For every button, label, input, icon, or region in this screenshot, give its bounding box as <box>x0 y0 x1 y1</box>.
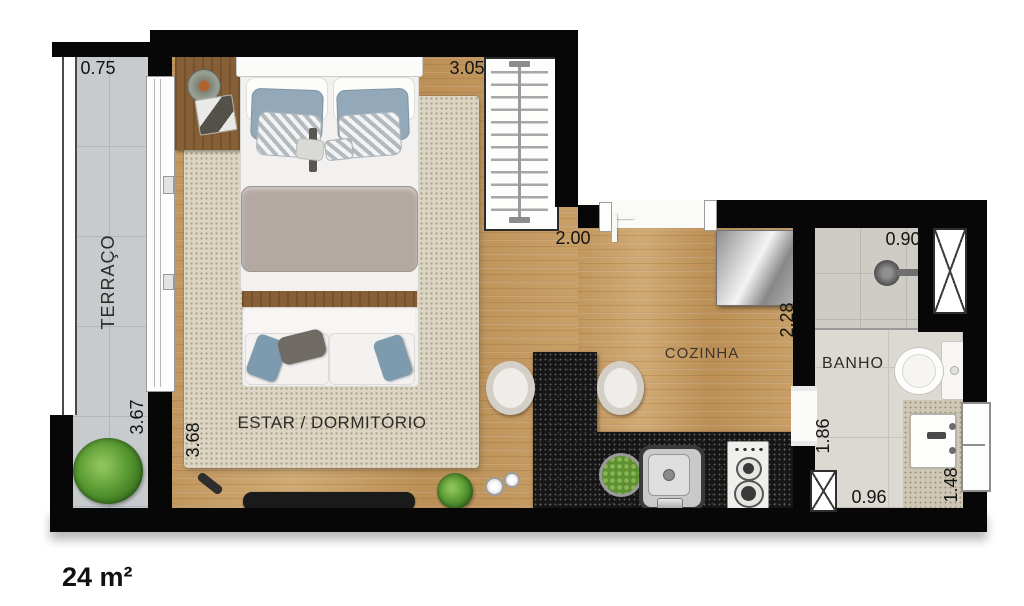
burner-large-center <box>741 486 756 501</box>
sliding-door-handle-2 <box>163 274 174 290</box>
plant-living <box>437 473 473 509</box>
sliding-door-line-1 <box>154 79 155 387</box>
dim-banho-right: 1.48 <box>931 464 971 506</box>
closet-rail-end-top <box>509 61 530 67</box>
duct-shaft-bottom-left <box>810 470 837 512</box>
sofa-console <box>242 291 417 307</box>
dim-cozinha-depth: 2.28 <box>768 300 806 340</box>
closet-rail-end-bottom <box>509 217 530 223</box>
entry-door-post-left <box>599 202 612 232</box>
pillow-small-left <box>295 137 325 161</box>
wall-closet-right <box>555 30 578 207</box>
bath-accessory-1 <box>949 423 956 430</box>
room-label-banho: BANHO <box>812 354 894 374</box>
magazines <box>194 94 237 136</box>
chair-left <box>486 361 535 415</box>
stove <box>727 441 769 509</box>
closet-rail <box>518 63 521 221</box>
bathroom-sink <box>909 413 957 469</box>
burner-small-center <box>743 463 754 474</box>
toilet-flush-button <box>950 366 959 375</box>
wall-terrace-bottom-left <box>50 415 73 515</box>
bath-accessory-2 <box>949 447 956 454</box>
toilet-seat <box>902 354 936 388</box>
sofa-backrest <box>244 309 415 333</box>
sliding-door-handle-1 <box>163 176 174 194</box>
dim-banho-width: 0.90 <box>883 229 923 249</box>
sliding-door-line-2 <box>160 79 161 387</box>
bathroom-faucet <box>927 432 946 439</box>
chair-right <box>597 361 644 415</box>
floor-plan-canvas: 0.75 TERRAÇO 3.67 3.68 3.05 ESTAR / DORM… <box>0 0 1024 606</box>
dim-banho-length: 1.86 <box>803 415 843 457</box>
dim-terraco-length: 3.67 <box>118 397 156 437</box>
closet <box>484 57 559 231</box>
wall-top-terrace <box>52 42 158 57</box>
dim-estar-width: 3.05 <box>444 58 490 78</box>
dim-banho-bottom: 0.96 <box>847 487 891 507</box>
room-label-estar: ESTAR / DORMITÓRIO <box>222 412 442 434</box>
entry-door-post-right <box>704 200 717 231</box>
dim-estar-length: 3.68 <box>174 420 212 460</box>
plant-terrace <box>73 438 143 504</box>
fridge <box>716 230 796 306</box>
bathroom-window-divider <box>963 444 985 446</box>
burner-small <box>736 457 762 481</box>
area-label: 24 m² <box>62 562 133 593</box>
pillow-small-right <box>324 138 354 162</box>
burner-large <box>734 480 764 508</box>
dim-cozinha-width: 2.00 <box>551 228 595 248</box>
bathroom-door-jamb-top <box>791 386 817 391</box>
wall-bottom <box>50 508 987 532</box>
sliding-door <box>146 76 175 392</box>
duct-shaft-top-right <box>933 228 967 314</box>
fruit-bowl <box>599 453 643 497</box>
wall-top-right <box>712 200 987 228</box>
cup-1 <box>485 477 504 496</box>
dim-terraco-width: 0.75 <box>76 58 120 78</box>
cup-2 <box>504 472 520 488</box>
table-flowers <box>534 399 584 449</box>
room-label-cozinha: COZINHA <box>656 344 748 362</box>
sink-drain <box>663 469 675 481</box>
wall-top-main <box>150 30 578 57</box>
room-label-terraco: TERRAÇO <box>98 222 118 342</box>
toilet-bowl <box>894 347 944 395</box>
stove-knobs <box>731 445 763 452</box>
bed-blanket <box>241 186 418 272</box>
terrace-railing <box>62 57 77 415</box>
entry-door-leaf-side <box>612 214 617 242</box>
